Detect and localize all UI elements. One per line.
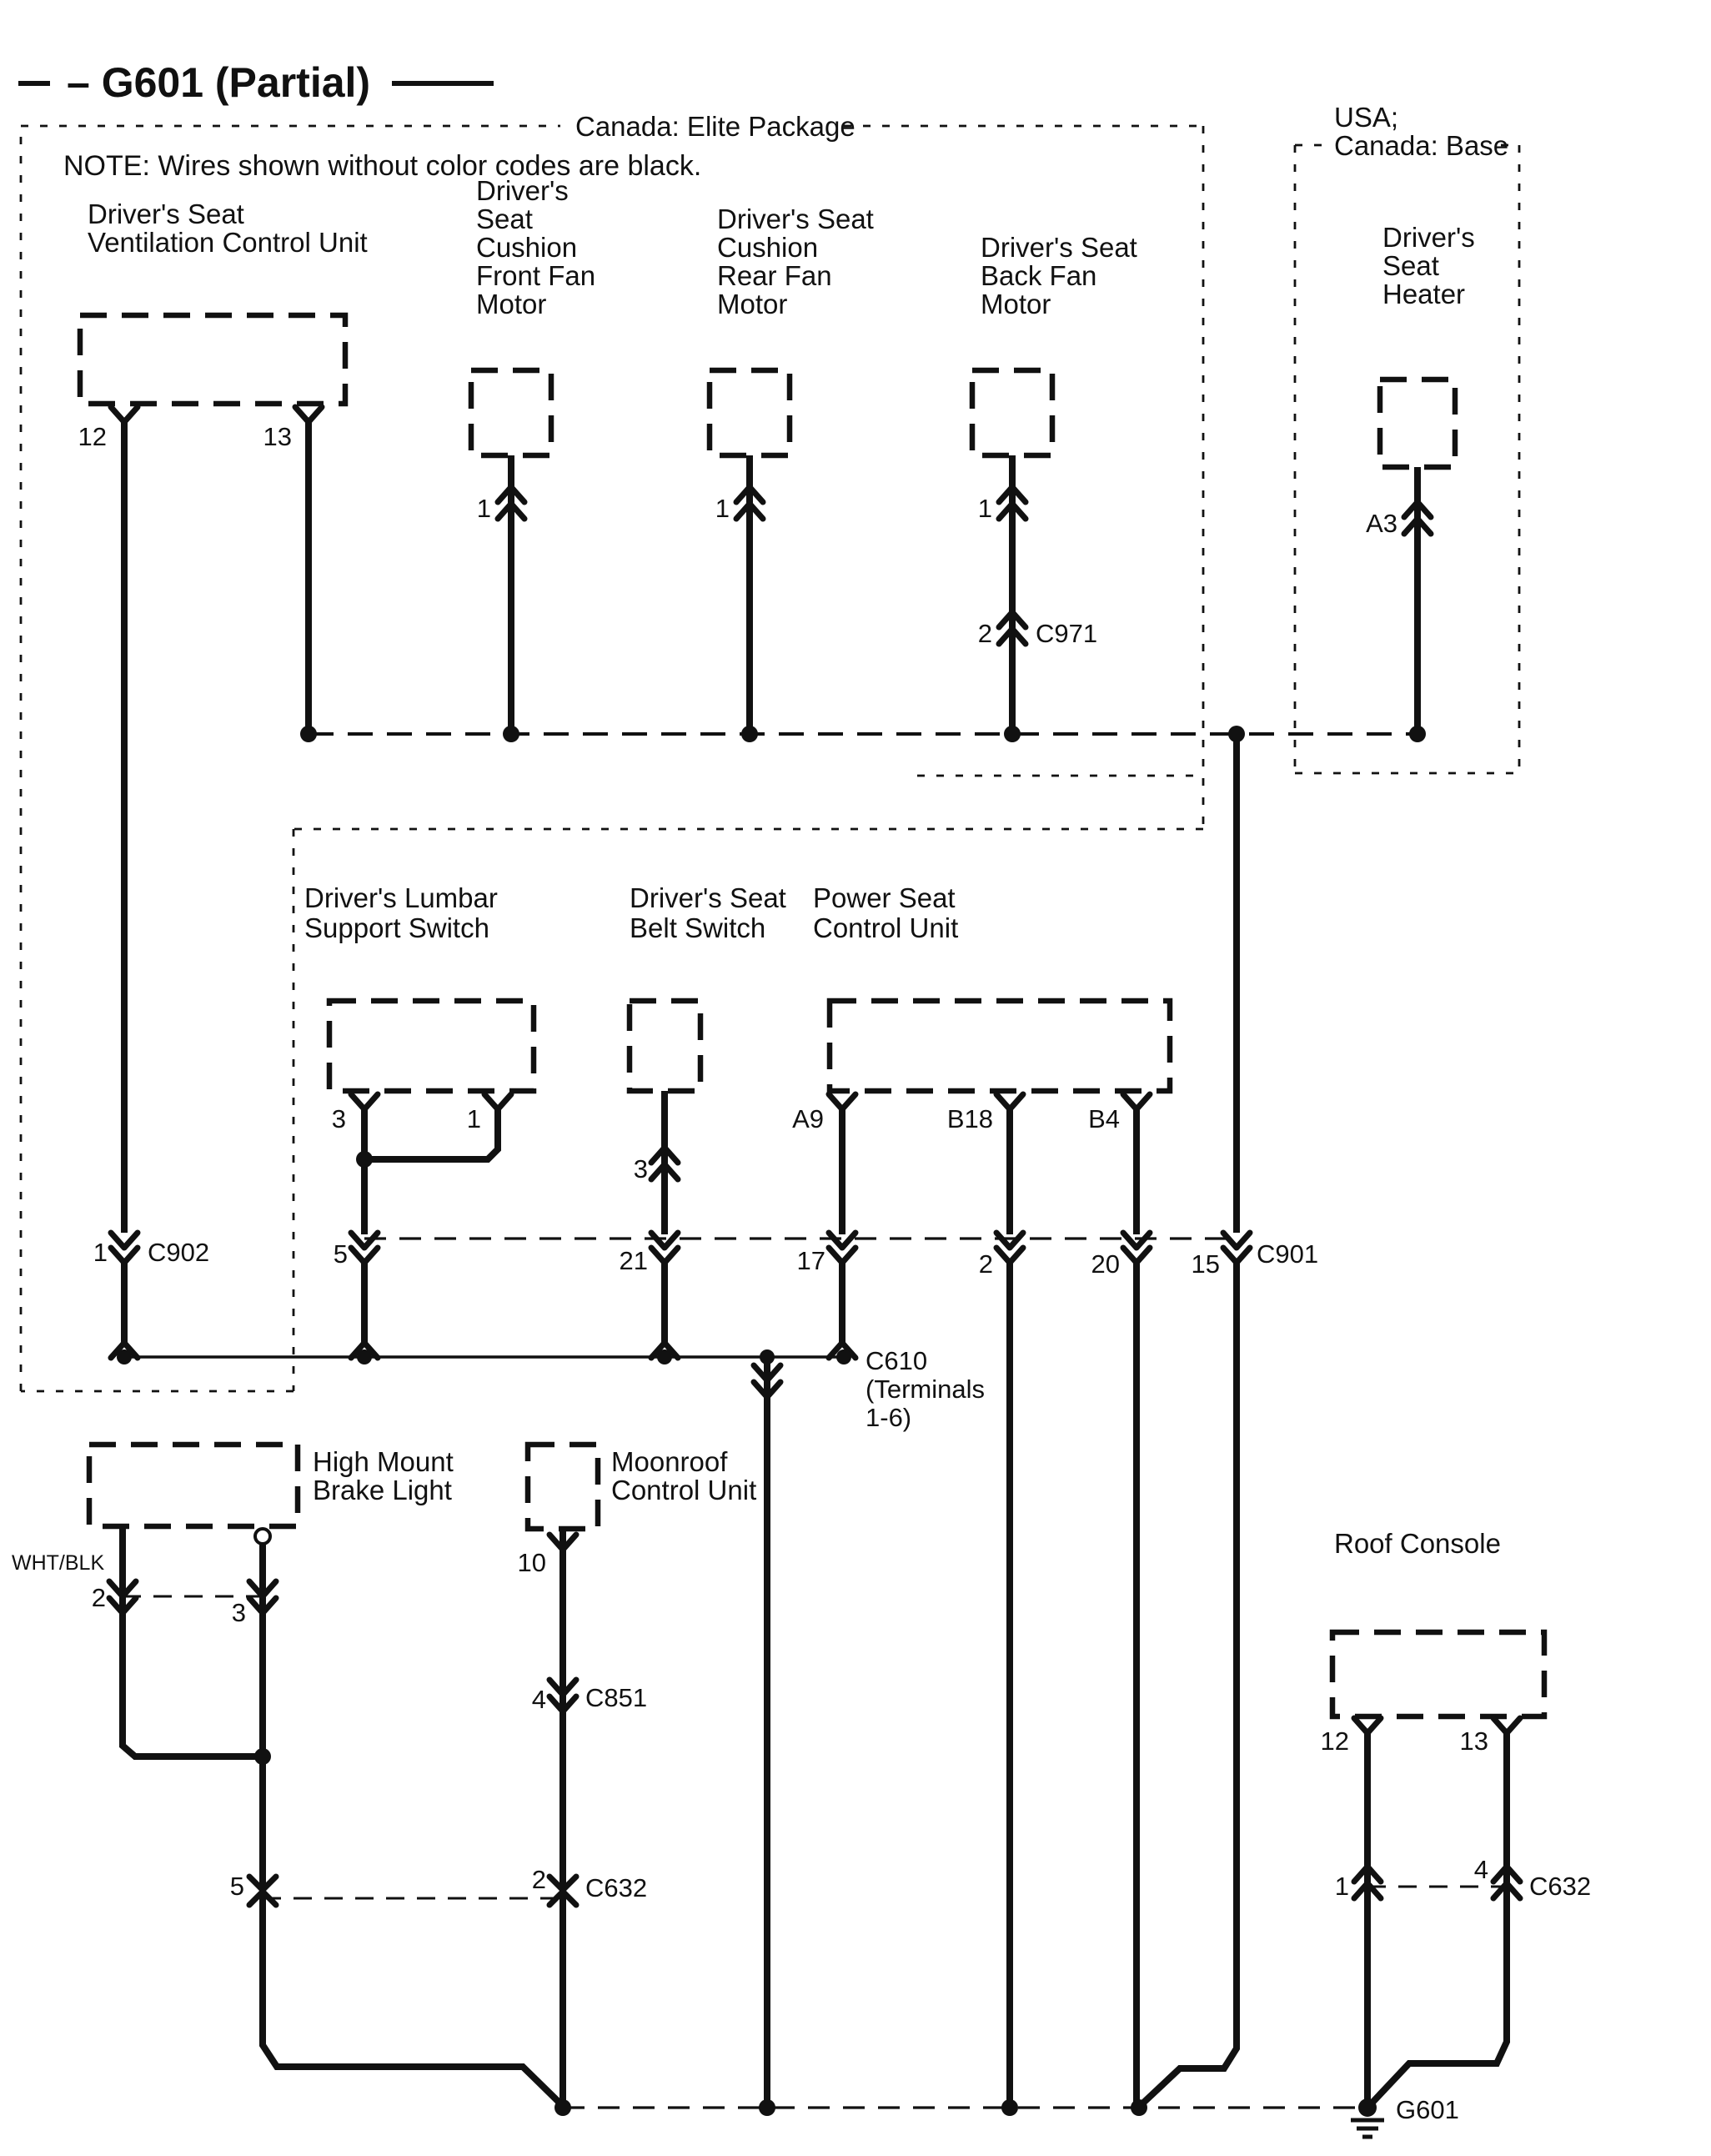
roof-pin12-chevron-icon <box>1354 1718 1381 1733</box>
power-pinB18-chevron-icon <box>996 1094 1023 1109</box>
belt-pin21-label: 21 <box>620 1246 648 1275</box>
component-seat-belt-switch: Driver's Seat Belt Switch 3 <box>630 882 786 1234</box>
front-fan-label-4: Front Fan <box>476 260 595 291</box>
component-power-seat-control-unit: Power Seat Control Unit A9 B18 B4 <box>792 882 1170 1234</box>
c632-right-connector-label: C632 <box>1529 1872 1591 1901</box>
c610-label-line1: C610 <box>866 1346 927 1375</box>
connector-c610: C610 (Terminals 1-6) <box>111 1343 985 2108</box>
c632-left-connector-label: C632 <box>585 1873 647 1902</box>
junction-dot <box>554 2099 571 2116</box>
ground-symbol-icon <box>1351 2120 1384 2137</box>
vent-pin13-chevron-icon <box>295 407 322 422</box>
power-label-2: Control Unit <box>813 912 958 943</box>
roof-pin12-label: 12 <box>1321 1726 1349 1756</box>
rear-fan-label-1: Driver's Seat <box>717 204 874 234</box>
moonroof-label-2: Control Unit <box>611 1475 756 1505</box>
moonroof-label-1: Moonroof <box>611 1446 728 1477</box>
component-rear-fan-motor: Driver's Seat Cushion Rear Fan Motor 1 <box>710 204 874 734</box>
bottom-ground-bus: G601 <box>554 2095 1459 2137</box>
back-fan-box <box>972 370 1052 455</box>
front-fan-label-1: Driver's <box>476 175 569 206</box>
c902-connector-label: C902 <box>148 1238 209 1267</box>
junction-dot <box>1004 726 1021 742</box>
junction-dot <box>836 1349 851 1364</box>
vent-box <box>80 315 345 404</box>
rear-fan-pin1-label: 1 <box>715 494 730 523</box>
elite-region-label: Canada: Elite Package <box>575 111 855 142</box>
power-pinB4-chevron-icon <box>1123 1094 1150 1109</box>
rear-fan-label-2: Cushion <box>717 232 818 263</box>
brake-label-1: High Mount <box>313 1446 454 1477</box>
roof-pin13-wire <box>1368 1733 1507 2107</box>
lumbar-pin3-chevron-icon <box>351 1094 378 1109</box>
front-fan-label-2: Seat <box>476 204 533 234</box>
c610-label-line3: 1-6) <box>866 1403 911 1432</box>
brake-wire-color-label: WHT/BLK <box>12 1551 104 1575</box>
vent-label-line1: Driver's Seat <box>88 199 244 229</box>
mid-vertical-wires <box>124 1263 1237 2108</box>
front-fan-label-5: Motor <box>476 289 546 319</box>
front-fan-pin1-label: 1 <box>477 494 491 523</box>
junction-dot <box>1131 2099 1147 2116</box>
junction-dot <box>117 1349 132 1364</box>
roof-pin4-label: 4 <box>1474 1855 1488 1884</box>
roof-pin13-label: 13 <box>1460 1726 1488 1756</box>
vent-label-line2: Ventilation Control Unit <box>88 227 368 258</box>
junction-dot <box>1001 2099 1018 2116</box>
rear-fan-box <box>710 370 790 455</box>
heater-pinA3-label: A3 <box>1366 509 1397 538</box>
lumbar-label-1: Driver's Lumbar <box>304 882 498 913</box>
vent-pin12-label: 12 <box>78 422 107 451</box>
component-seat-heater: Driver's Seat Heater A3 <box>1366 222 1475 734</box>
brake-light-box <box>89 1445 298 1526</box>
page-title: – G601 (Partial) <box>67 59 370 106</box>
usa-region-label-line2: Canada: Base <box>1334 130 1508 161</box>
brake-pin2-wire <box>123 1526 263 1756</box>
component-roof-console: Roof Console 12 13 1 4 C632 <box>1321 1528 1592 2107</box>
junction-dot <box>759 2099 775 2116</box>
belt-box <box>630 1001 700 1091</box>
power-seat-box <box>830 1001 1170 1091</box>
junction-dot <box>503 726 519 742</box>
brake-pin2-label: 2 <box>92 1583 106 1612</box>
wiring-diagram-page: – G601 (Partial) NOTE: Wires shown witho… <box>0 0 1711 2156</box>
junction-dot <box>741 726 758 742</box>
brake-label-2: Brake Light <box>313 1475 452 1505</box>
vent-pin12-chevron-icon <box>111 407 138 422</box>
c902-pin-label: 1 <box>93 1238 108 1267</box>
front-fan-label-3: Cushion <box>476 232 577 263</box>
component-lumbar-support-switch: Driver's Lumbar Support Switch 3 1 <box>304 882 534 1234</box>
c901-connector-label: C901 <box>1257 1239 1318 1269</box>
heater-box <box>1380 379 1455 467</box>
junction-dot <box>254 1748 271 1765</box>
lumbar-pin5-label: 5 <box>334 1239 348 1269</box>
power-label-1: Power Seat <box>813 882 956 913</box>
c902-chevron-icon <box>111 1233 138 1263</box>
moonroof-pin4-label: 4 <box>532 1685 546 1714</box>
power-pin2-label: 2 <box>979 1249 993 1279</box>
moonroof-box <box>528 1445 598 1529</box>
junction-dot <box>657 1349 672 1364</box>
roof-pin13-chevron-icon <box>1493 1718 1520 1733</box>
junction-dot <box>357 1349 372 1364</box>
heater-label-1: Driver's <box>1382 222 1475 253</box>
back-fan-label-2: Back Fan <box>981 260 1096 291</box>
component-ventilation-control-unit: Driver's Seat Ventilation Control Unit 1… <box>78 199 368 1233</box>
front-fan-box <box>471 370 551 455</box>
power-pinA9-label: A9 <box>792 1104 824 1133</box>
junction-dot <box>356 1151 373 1168</box>
c901-chevron-icon <box>1223 1233 1250 1263</box>
usa-region-label-line1: USA; <box>1334 102 1398 133</box>
lumbar-pin3-label: 3 <box>332 1104 346 1133</box>
brake-open-terminal-icon <box>255 1529 270 1544</box>
junction-dot <box>300 726 317 742</box>
brake-pin5-label: 5 <box>230 1872 244 1901</box>
junction-dot <box>1409 726 1426 742</box>
lumbar-pin1-chevron-icon <box>484 1094 511 1109</box>
component-high-mount-brake-light: High Mount Brake Light WHT/BLK 2 3 5 <box>12 1445 564 2107</box>
moonroof-pin10-label: 10 <box>518 1548 546 1577</box>
rear-fan-label-3: Rear Fan <box>717 260 832 291</box>
back-fan-label-3: Motor <box>981 289 1051 319</box>
moonroof-pin2-label: 2 <box>532 1865 546 1894</box>
power-pinB4-label: B4 <box>1088 1104 1120 1133</box>
note-text: NOTE: Wires shown without color codes ar… <box>63 150 701 182</box>
lumbar-label-2: Support Switch <box>304 912 489 943</box>
belt-pin3-label: 3 <box>634 1154 648 1184</box>
rear-fan-label-4: Motor <box>717 289 787 319</box>
power-pinB18-label: B18 <box>947 1104 993 1133</box>
power-pinA9-chevron-icon <box>829 1094 855 1109</box>
main-ground-feed-wire-lower <box>1139 1263 1237 2107</box>
ground-label: G601 <box>1396 2095 1459 2124</box>
vent-pin13-label: 13 <box>263 422 292 451</box>
heater-label-3: Heater <box>1382 279 1465 309</box>
c971-pin-label: 2 <box>978 619 992 648</box>
c901-pin15-label: 15 <box>1192 1249 1220 1279</box>
roof-console-label: Roof Console <box>1334 1528 1501 1559</box>
belt-label-1: Driver's Seat <box>630 882 786 913</box>
c971-connector-label: C971 <box>1036 619 1097 648</box>
wiring-diagram: – G601 (Partial) NOTE: Wires shown witho… <box>0 0 1711 2156</box>
back-fan-pin1-label: 1 <box>978 494 992 523</box>
back-fan-label-1: Driver's Seat <box>981 232 1137 263</box>
roof-console-box <box>1332 1632 1544 1716</box>
component-back-fan-motor: Driver's Seat Back Fan Motor 1 2 C971 <box>972 232 1137 734</box>
component-moonroof-control-unit: Moonroof Control Unit 10 4 C851 2 C632 <box>263 1445 756 2108</box>
lumbar-box <box>329 1001 534 1091</box>
belt-label-2: Belt Switch <box>630 912 765 943</box>
c851-connector-label: C851 <box>585 1683 647 1712</box>
component-front-fan-motor: Driver's Seat Cushion Front Fan Motor 1 <box>471 175 595 734</box>
c901-chevron-icon <box>829 1233 855 1263</box>
c610-label-line2: (Terminals <box>866 1375 985 1404</box>
power-pin20-label: 20 <box>1091 1249 1120 1279</box>
roof-pin1-label: 1 <box>1335 1872 1349 1901</box>
ground-dot <box>1358 2098 1377 2117</box>
power-pin17-label: 17 <box>797 1246 825 1275</box>
lumbar-pin1-label: 1 <box>467 1104 481 1133</box>
heater-label-2: Seat <box>1382 250 1439 281</box>
brake-pin3-label: 3 <box>232 1598 246 1627</box>
brake-pin3-wire <box>263 1544 564 2107</box>
region-usa-base: USA; Canada: Base <box>1295 102 1519 773</box>
